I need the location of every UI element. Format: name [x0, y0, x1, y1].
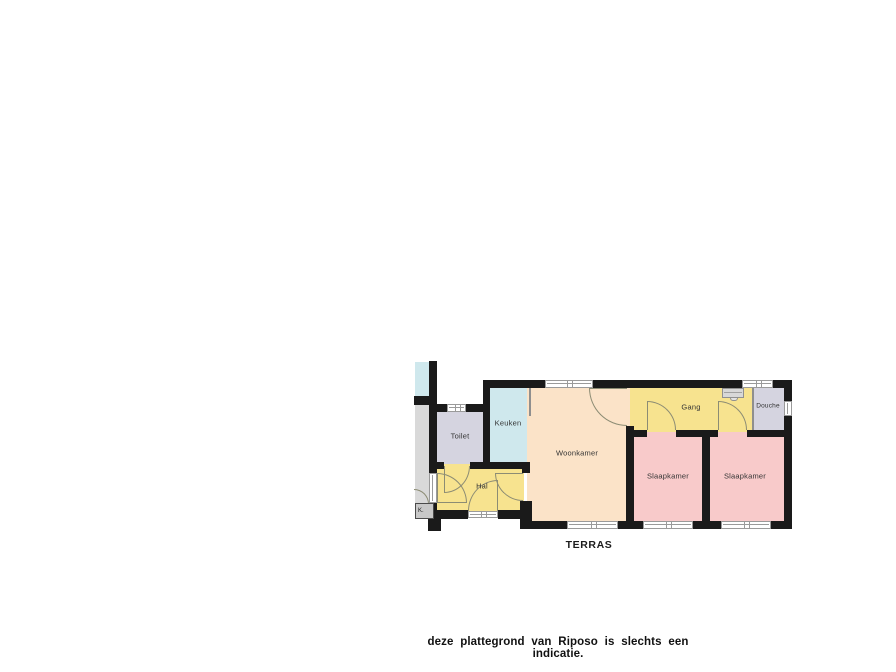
floorplan-drawing: K. Toilet Keuken Woonkamer Gang Douche S… — [0, 0, 896, 672]
room-label-toilet: Toilet — [451, 432, 470, 441]
closet-box: K. — [415, 503, 434, 519]
partition-keuken-woonkamer — [529, 388, 531, 416]
room-label-douche: Douche — [756, 403, 780, 410]
window-toilet — [447, 404, 466, 412]
wall-woonkamer-right — [626, 426, 634, 521]
wall-toilet-left — [429, 412, 437, 462]
wall-gang-bottom-b — [676, 430, 718, 437]
room-label-hal: Hal — [476, 482, 488, 491]
room-label-woonkamer: Woonkamer — [556, 449, 598, 458]
wall-hal-left-upper — [429, 462, 437, 473]
opening-hal-side-door — [429, 473, 437, 503]
wall-bottomleft-stub — [428, 519, 441, 531]
room-label-slaapkamer-links: Slaapkamer — [647, 472, 689, 481]
wall-gang-bottom-c — [747, 430, 784, 437]
room-fill-neighbor-cyan — [415, 362, 429, 398]
partition-gang-douche — [752, 388, 754, 430]
window-bottom-slaapkamer-rechts — [721, 521, 771, 529]
room-label-gang: Gang — [681, 403, 700, 412]
wall-slaapkamer-divider — [702, 430, 710, 521]
room-label-slaapkamer-rechts: Slaapkamer — [724, 472, 766, 481]
wall-hal-bottom-a — [428, 510, 468, 519]
window-top-douche — [742, 380, 773, 388]
window-top-woonkamer — [545, 380, 593, 388]
caption-text: deze plattegrond van Riposo is slechts e… — [408, 636, 708, 660]
window-bottom-slaapkamer-links — [643, 521, 693, 529]
window-bottom-woonkamer — [567, 521, 618, 529]
room-label-keuken: Keuken — [495, 419, 522, 428]
wall-gang-bottom-a — [626, 430, 647, 437]
threshold-front-door — [468, 511, 498, 518]
sink-faucet-icon — [730, 397, 738, 401]
wall-hal-top-b — [470, 462, 530, 469]
floorplan-page: K. Toilet Keuken Woonkamer Gang Douche S… — [0, 0, 896, 672]
terras-label: TERRAS — [566, 539, 613, 551]
wall-keuken-left — [483, 380, 490, 464]
wall-topleft-chunk — [414, 396, 437, 405]
wall-hal-right-upper — [522, 462, 530, 473]
window-right-douche — [784, 401, 792, 416]
wall-hal-bottom-b — [498, 510, 524, 519]
